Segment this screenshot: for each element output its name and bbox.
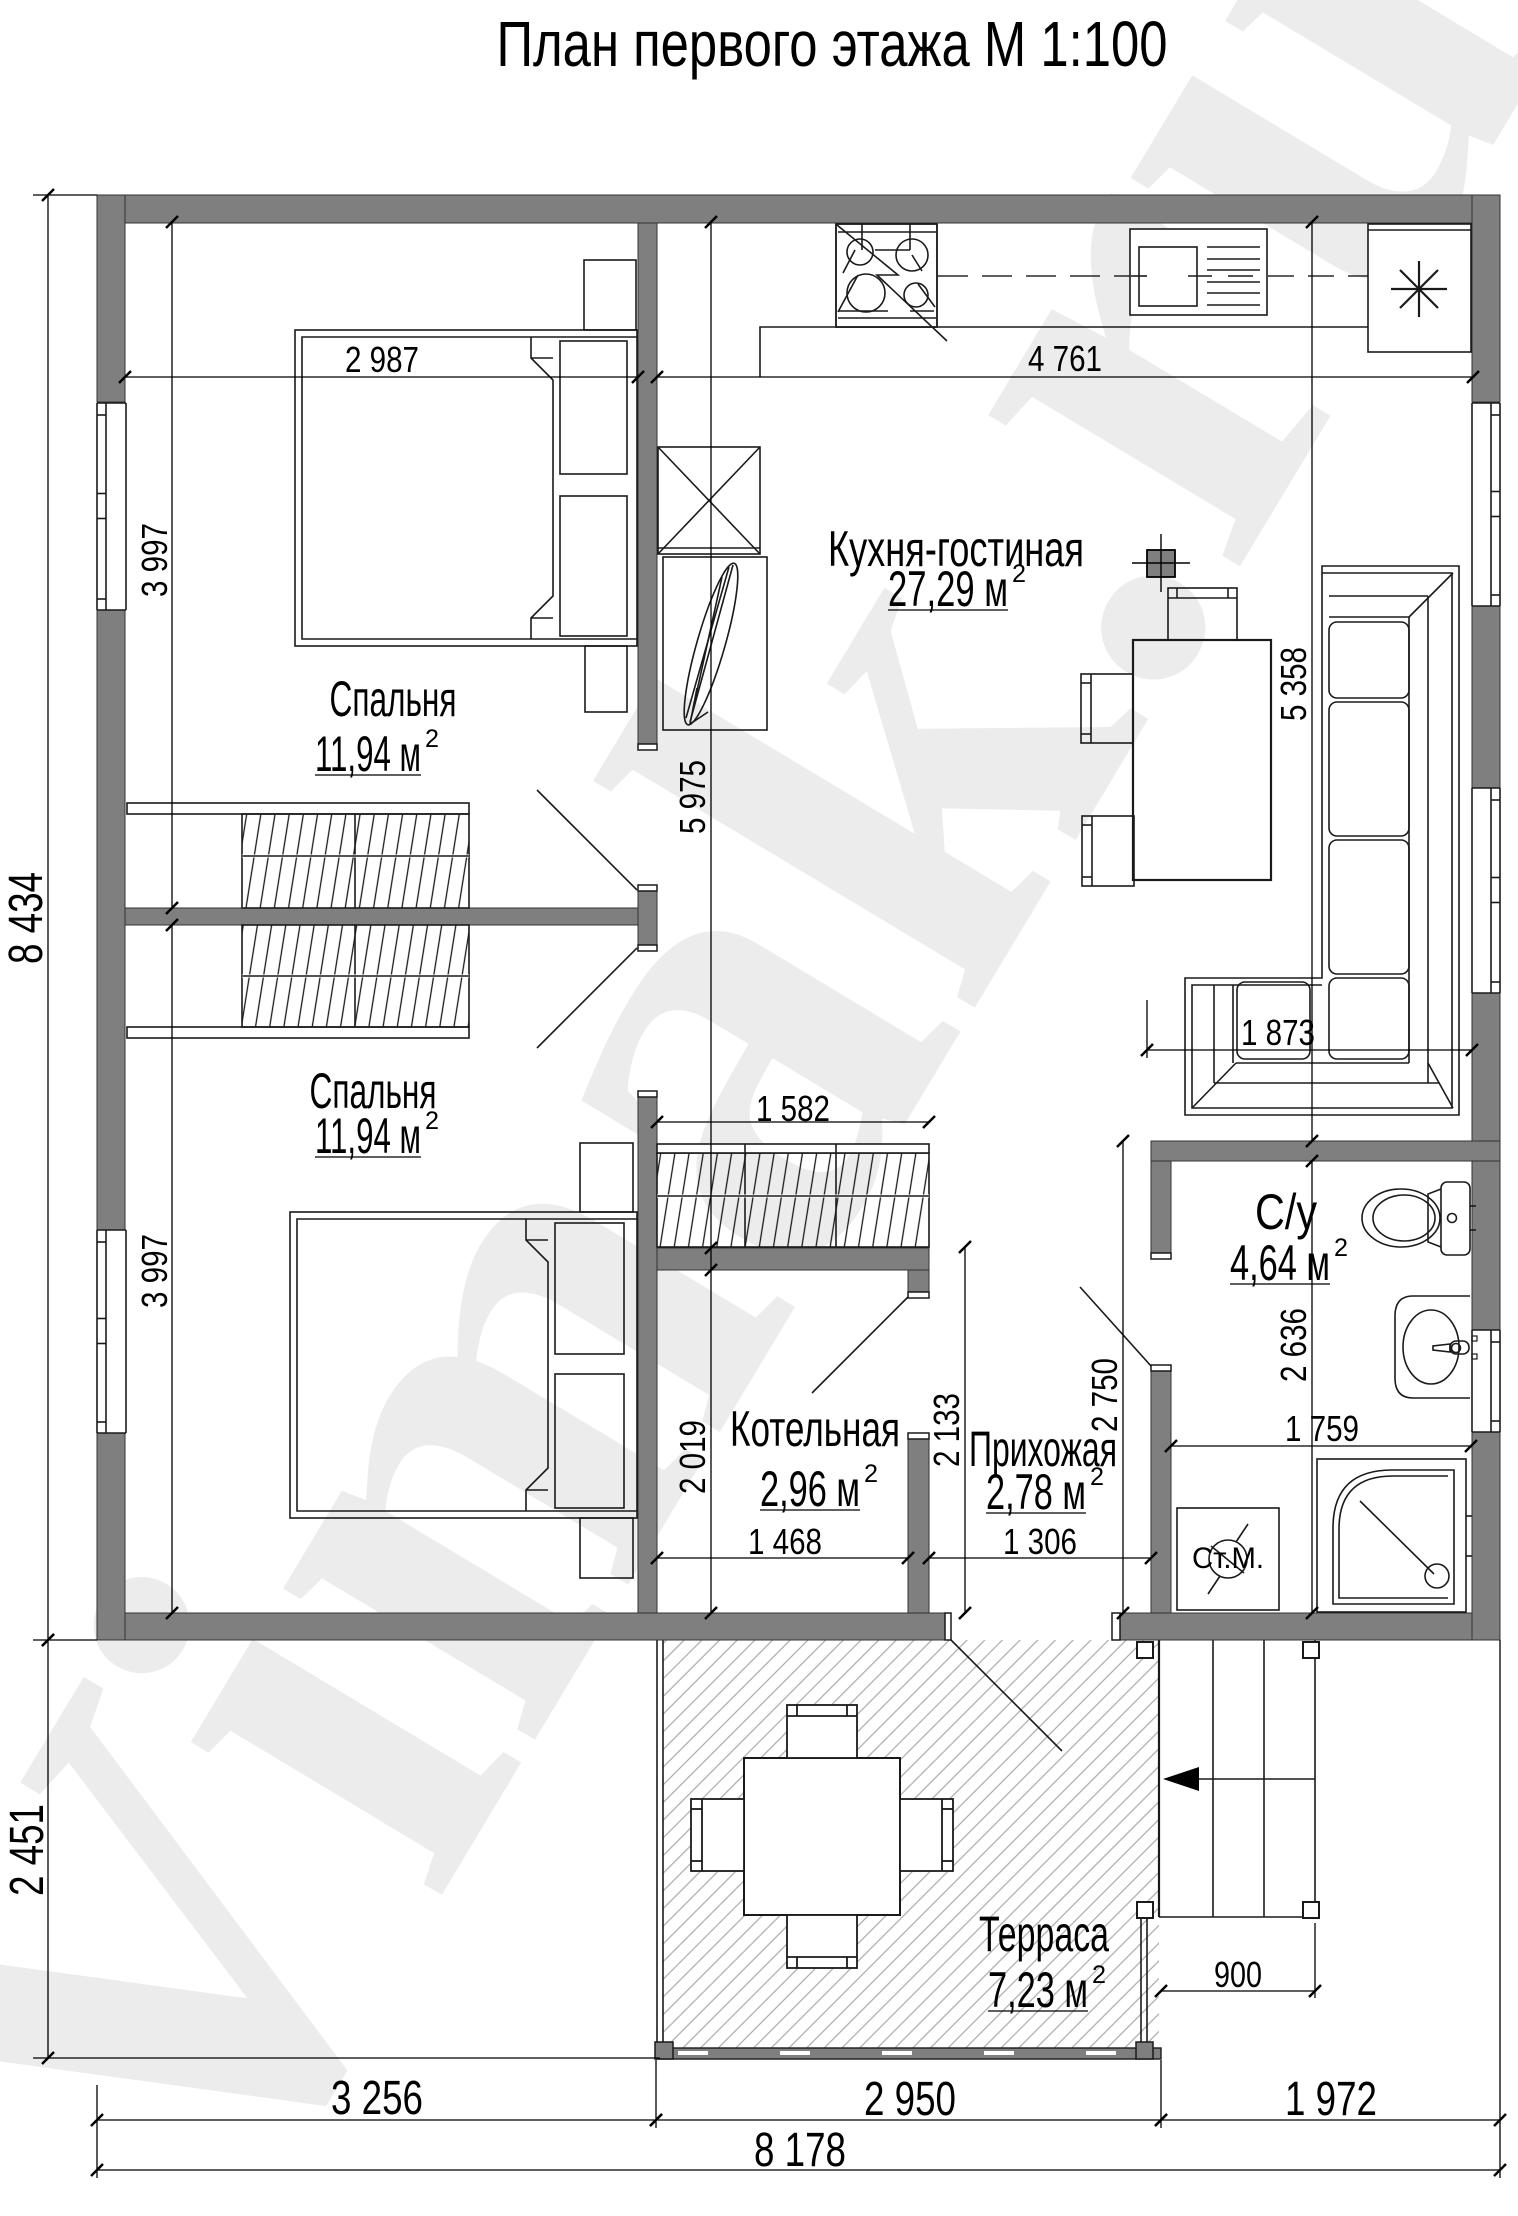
svg-text:2: 2 xyxy=(1092,1961,1106,1989)
svg-text:1 972: 1 972 xyxy=(1285,2073,1377,2126)
svg-text:1 582: 1 582 xyxy=(756,1088,830,1129)
svg-text:Терраса: Терраса xyxy=(979,1906,1109,1962)
svg-text:2 636: 2 636 xyxy=(1273,1308,1314,1382)
svg-text:2: 2 xyxy=(425,1107,439,1135)
svg-text:2: 2 xyxy=(425,725,439,753)
svg-text:2: 2 xyxy=(864,1460,878,1488)
svg-text:С/у: С/у xyxy=(1255,1184,1317,1240)
svg-text:Котельная: Котельная xyxy=(730,1401,900,1457)
svg-text:2,78 м: 2,78 м xyxy=(986,1464,1086,1520)
svg-text:11,94 м: 11,94 м xyxy=(315,1108,421,1164)
svg-text:27,29 м: 27,29 м xyxy=(888,561,1008,617)
svg-text:1 306: 1 306 xyxy=(1003,1521,1077,1562)
svg-text:2 133: 2 133 xyxy=(926,1393,967,1467)
svg-text:4,64 м: 4,64 м xyxy=(1230,1235,1330,1291)
svg-text:Спальня: Спальня xyxy=(330,671,457,727)
svg-text:900: 900 xyxy=(1214,1954,1262,1995)
svg-text:3 997: 3 997 xyxy=(134,1234,175,1308)
svg-text:Ст.М.: Ст.М. xyxy=(1192,1542,1264,1575)
svg-text:5 975: 5 975 xyxy=(672,760,713,834)
svg-text:3 256: 3 256 xyxy=(331,2072,423,2125)
svg-text:2: 2 xyxy=(1012,560,1026,588)
svg-text:2 950: 2 950 xyxy=(864,2073,956,2126)
svg-text:2: 2 xyxy=(1334,1234,1348,1262)
svg-text:План первого этажа М 1:100: План первого этажа М 1:100 xyxy=(497,8,1168,80)
svg-text:2 019: 2 019 xyxy=(672,1420,713,1494)
svg-text:11,94 м: 11,94 м xyxy=(315,726,421,782)
svg-text:8 434: 8 434 xyxy=(0,872,53,964)
svg-text:2,96 м: 2,96 м xyxy=(760,1461,860,1517)
svg-text:3 997: 3 997 xyxy=(134,523,175,597)
svg-text:8 178: 8 178 xyxy=(754,2124,846,2177)
svg-text:1 468: 1 468 xyxy=(748,1521,822,1562)
svg-text:4 761: 4 761 xyxy=(1028,338,1102,379)
svg-text:2: 2 xyxy=(1090,1463,1104,1491)
svg-text:1 759: 1 759 xyxy=(1285,1408,1359,1449)
svg-text:7,23 м: 7,23 м xyxy=(988,1962,1088,2018)
svg-text:1 873: 1 873 xyxy=(1241,1012,1315,1053)
svg-text:2 451: 2 451 xyxy=(1,1804,54,1896)
svg-text:5 358: 5 358 xyxy=(1273,647,1314,721)
svg-text:2 987: 2 987 xyxy=(345,339,419,380)
